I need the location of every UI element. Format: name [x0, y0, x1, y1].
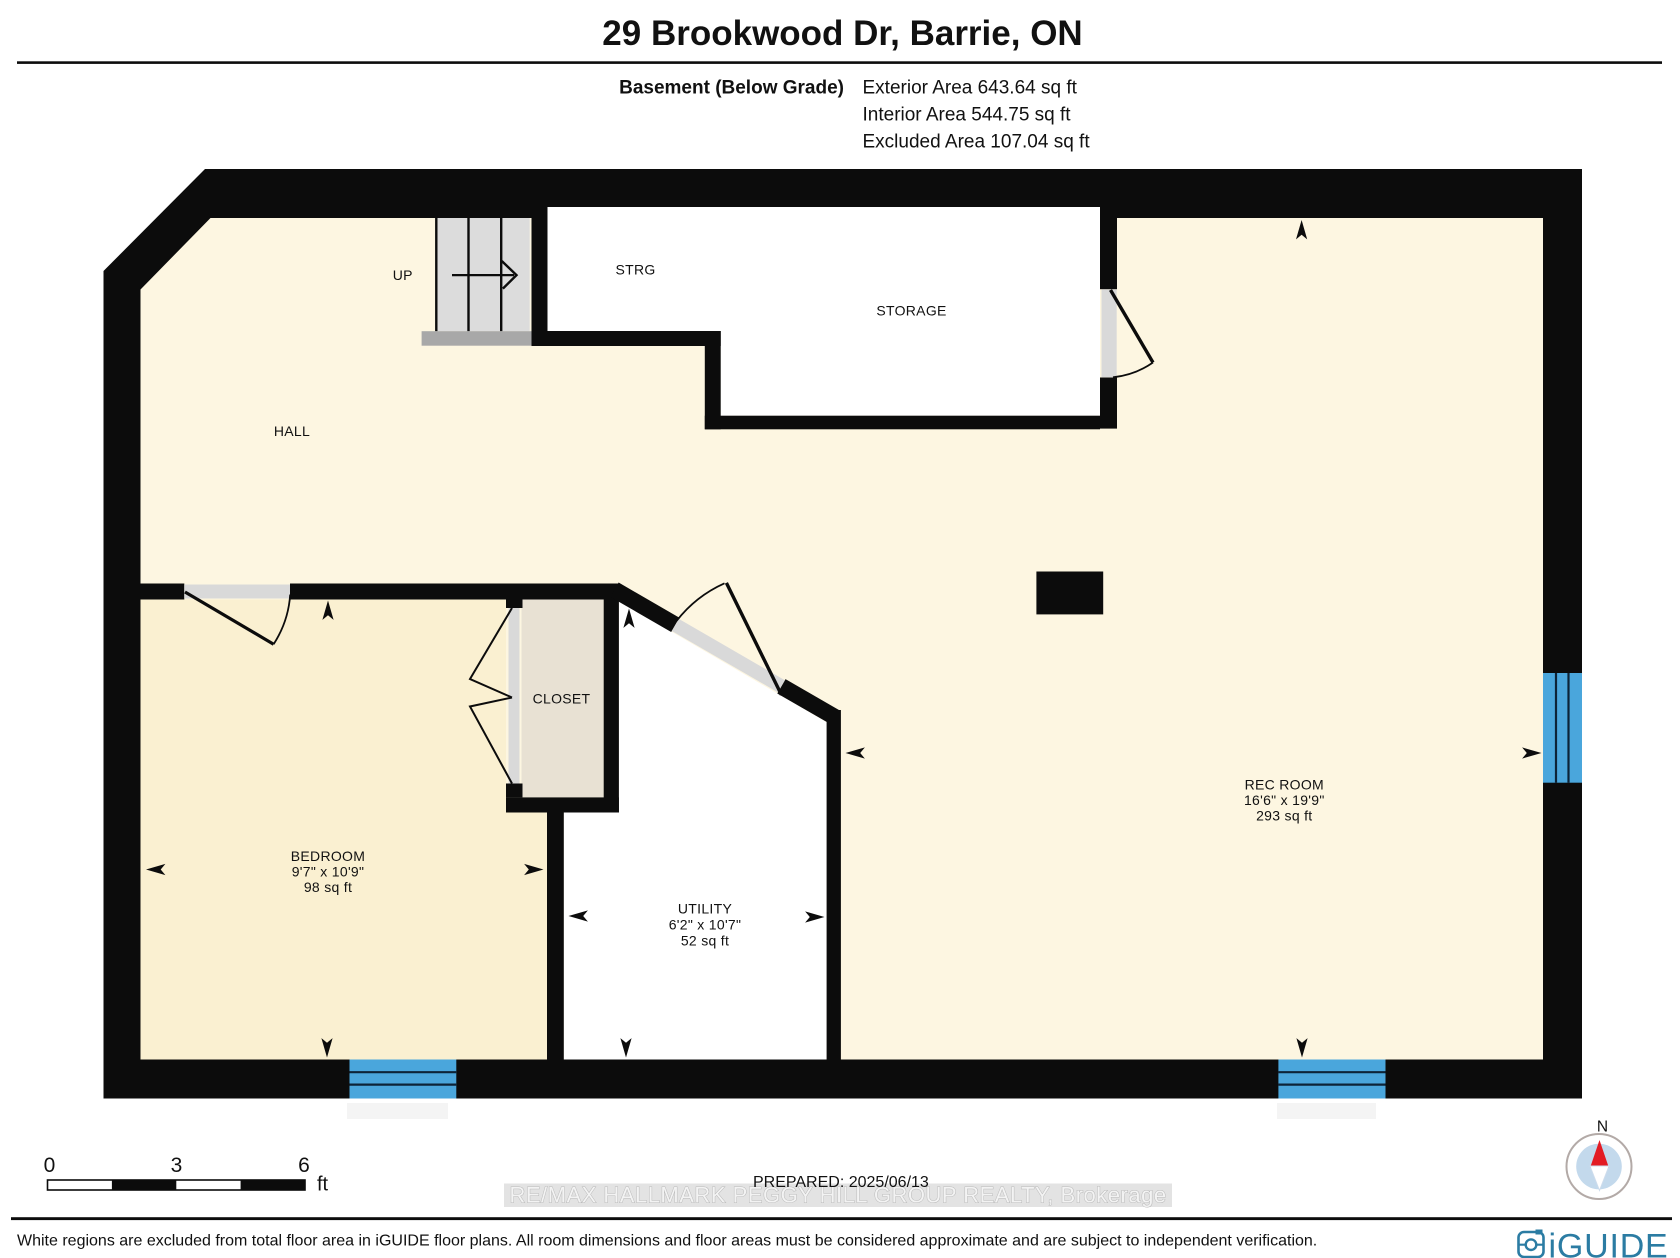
- svg-text:UTILITY: UTILITY: [678, 901, 733, 917]
- svg-text:6: 6: [298, 1154, 310, 1177]
- svg-text:Exterior Area 643.64 sq ft: Exterior Area 643.64 sq ft: [863, 78, 1078, 99]
- svg-text:iGUIDE: iGUIDE: [1549, 1228, 1669, 1258]
- svg-text:BEDROOM: BEDROOM: [291, 848, 365, 864]
- svg-text:PREPARED: 2025/06/13: PREPARED: 2025/06/13: [753, 1174, 929, 1191]
- svg-text:White regions are excluded fro: White regions are excluded from total fl…: [17, 1233, 1317, 1250]
- svg-text:STRG: STRG: [615, 262, 655, 278]
- svg-text:N: N: [1597, 1119, 1608, 1136]
- svg-text:REC ROOM: REC ROOM: [1245, 777, 1324, 793]
- svg-text:9'7" x 10'9": 9'7" x 10'9": [292, 864, 365, 880]
- svg-text:Interior Area 544.75 sq ft: Interior Area 544.75 sq ft: [863, 105, 1072, 126]
- svg-text:98 sq ft: 98 sq ft: [304, 879, 352, 895]
- svg-text:3: 3: [171, 1154, 183, 1177]
- svg-text:UP: UP: [393, 267, 413, 283]
- svg-text:0: 0: [44, 1154, 56, 1177]
- svg-text:Excluded Area 107.04 sq ft: Excluded Area 107.04 sq ft: [863, 132, 1091, 153]
- svg-text:293 sq ft: 293 sq ft: [1256, 808, 1312, 824]
- svg-text:STORAGE: STORAGE: [876, 303, 946, 319]
- svg-text:6'2" x 10'7": 6'2" x 10'7": [669, 917, 742, 933]
- svg-text:16'6" x 19'9": 16'6" x 19'9": [1244, 792, 1325, 808]
- svg-text:ft: ft: [317, 1174, 329, 1196]
- svg-text:29 Brookwood Dr, Barrie, ON: 29 Brookwood Dr, Barrie, ON: [602, 14, 1082, 53]
- svg-text:CLOSET: CLOSET: [533, 691, 591, 707]
- svg-text:HALL: HALL: [274, 423, 310, 439]
- svg-text:52 sq ft: 52 sq ft: [681, 933, 729, 949]
- svg-text:Basement (Below Grade): Basement (Below Grade): [619, 78, 844, 99]
